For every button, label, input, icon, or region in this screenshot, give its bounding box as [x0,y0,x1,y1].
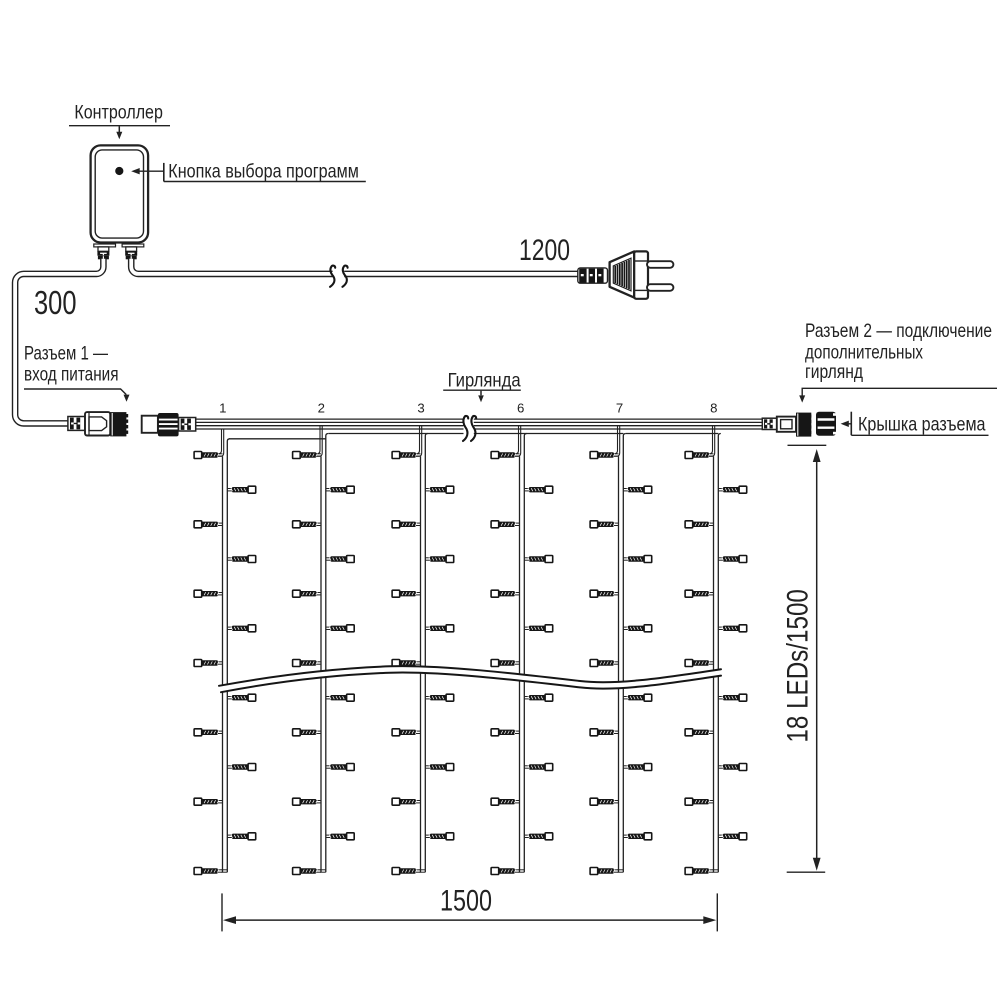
svg-text:3: 3 [417,400,424,415]
svg-text:Крышка разъема: Крышка разъема [858,414,986,436]
svg-text:гирлянд: гирлянд [805,361,863,383]
svg-text:2: 2 [318,400,325,415]
svg-text:Гирлянда: Гирлянда [448,369,521,391]
svg-text:Разъем 2 — подключение: Разъем 2 — подключение [805,320,992,342]
svg-text:1: 1 [219,400,226,415]
svg-text:1200: 1200 [519,234,570,267]
svg-text:Разъем 1 —: Разъем 1 — [24,343,108,365]
svg-text:7: 7 [616,400,623,415]
svg-text:Контроллер: Контроллер [74,101,163,123]
svg-text:вход питания: вход питания [24,363,119,385]
svg-text:18 LEDs/1500: 18 LEDs/1500 [781,589,814,743]
svg-text:Кнопка выбора программ: Кнопка выбора программ [168,160,358,182]
svg-text:6: 6 [517,400,524,415]
svg-text:300: 300 [34,284,77,321]
svg-text:8: 8 [710,400,717,415]
svg-text:1500: 1500 [440,885,492,918]
